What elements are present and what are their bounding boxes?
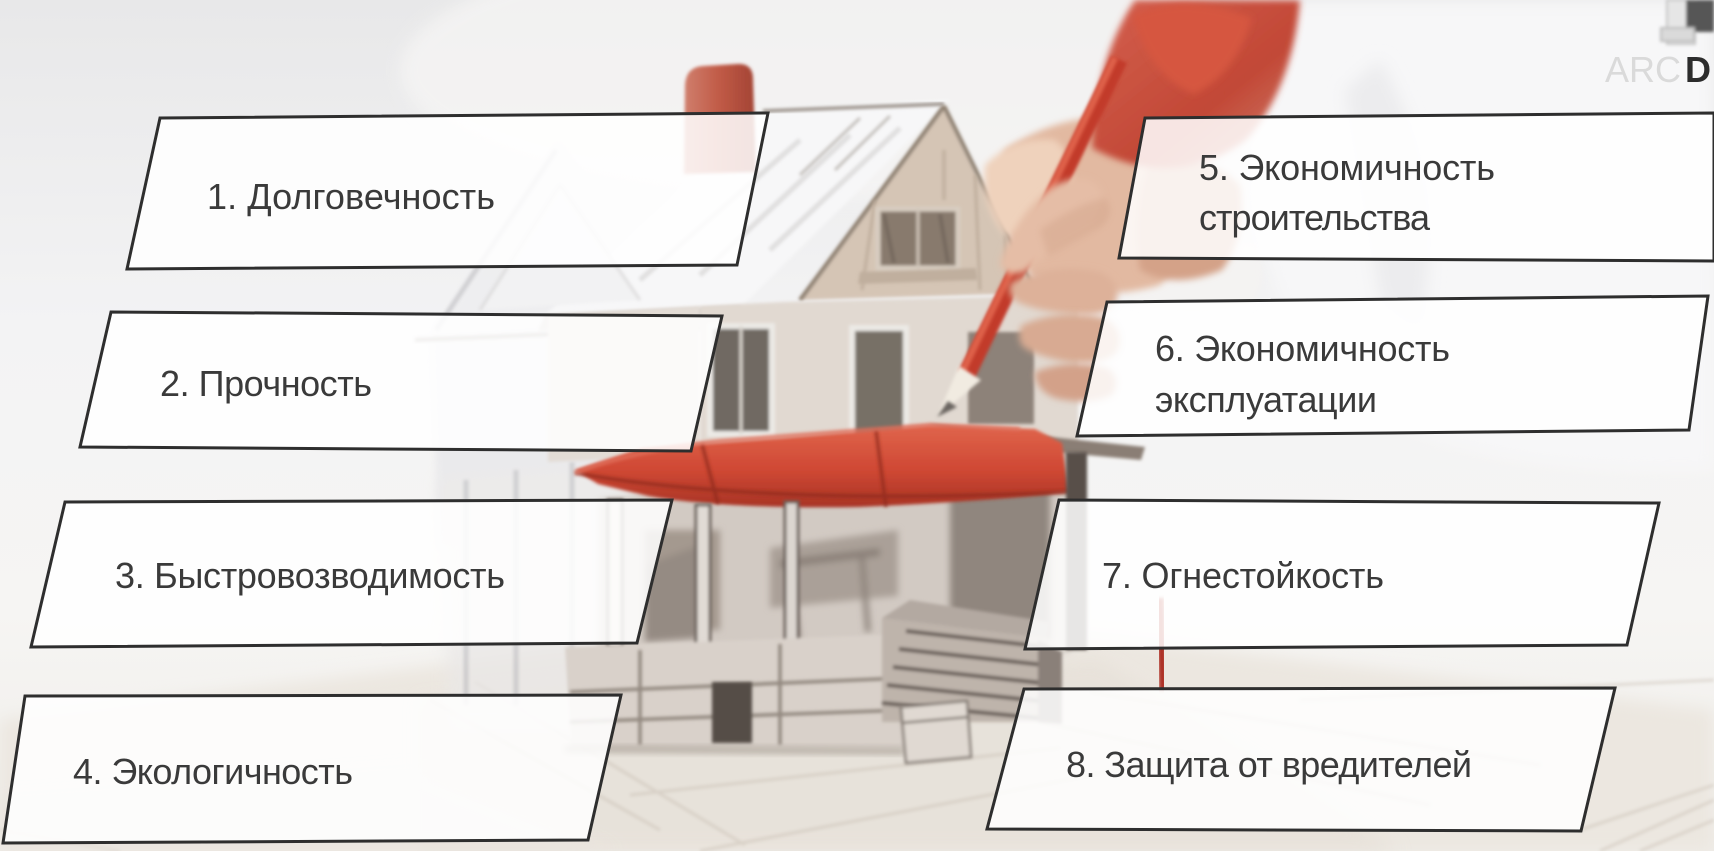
svg-text:1. Долговечность: 1. Долговечность	[207, 176, 495, 217]
svg-text:2. Прочность: 2. Прочность	[160, 363, 372, 404]
svg-text:6. Экономичность: 6. Экономичность	[1155, 328, 1450, 369]
svg-text:3. Быстровозводимость: 3. Быстровозводимость	[115, 555, 505, 596]
svg-text:эксплуатации: эксплуатации	[1155, 379, 1377, 420]
svg-text:D: D	[1685, 49, 1711, 90]
svg-text:5. Экономичность: 5. Экономичность	[1199, 147, 1495, 188]
svg-text:4. Экологичность: 4. Экологичность	[73, 751, 353, 792]
svg-text:8. Защита от вредителей: 8. Защита от вредителей	[1066, 744, 1472, 785]
svg-text:ARC: ARC	[1605, 49, 1681, 90]
svg-text:7. Огнестойкость: 7. Огнестойкость	[1102, 555, 1384, 596]
svg-text:строительства: строительства	[1199, 197, 1431, 238]
